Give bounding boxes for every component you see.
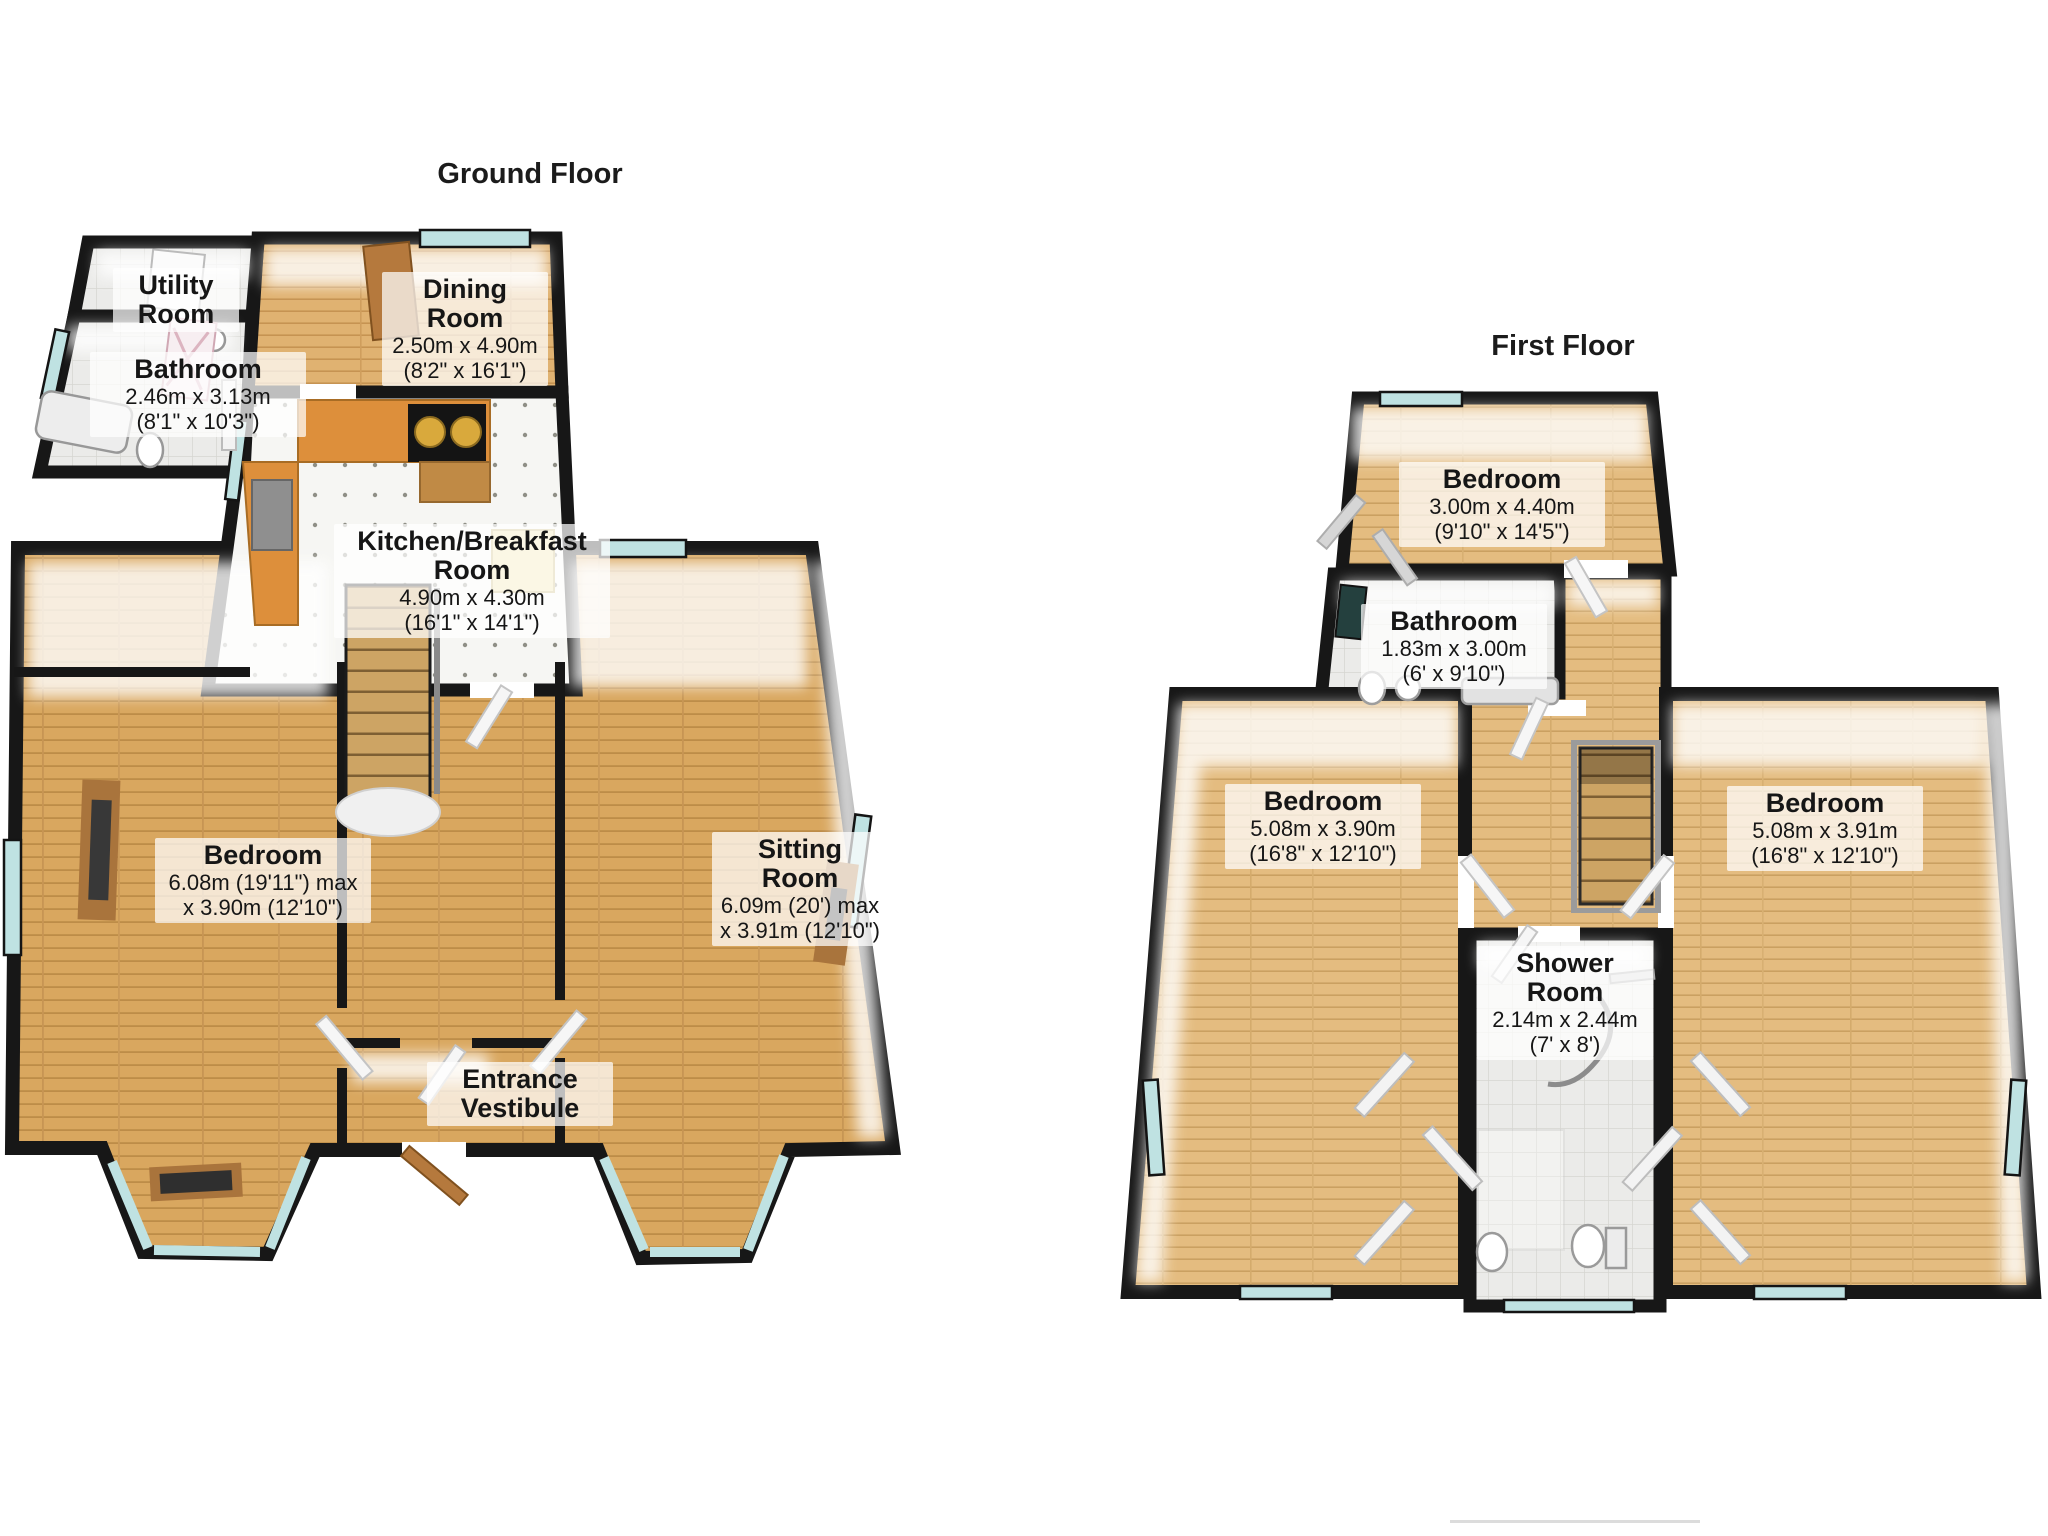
room-dim-metric: 5.08m x 3.91m bbox=[1752, 818, 1898, 843]
room-dim-imperial: (16'8" x 12'10") bbox=[1249, 841, 1397, 866]
room-name: Bedroom bbox=[1766, 789, 1885, 818]
room-dim-metric: 3.00m x 4.40m bbox=[1429, 494, 1575, 519]
room-dim-metric: 6.08m (19'11") max bbox=[169, 870, 358, 895]
room-name: Bathroom bbox=[134, 355, 262, 384]
room-dim-metric: 5.08m x 3.90m bbox=[1250, 816, 1396, 841]
room-label-gf-bathroom: Bathroom 2.46m x 3.13m (8'1" x 10'3") bbox=[90, 352, 306, 437]
room-label-ff-bathroom: Bathroom 1.83m x 3.00m (6' x 9'10") bbox=[1361, 604, 1547, 689]
room-dim-metric: 6.09m (20') max bbox=[721, 893, 879, 918]
room-name: Bedroom bbox=[204, 841, 323, 870]
room-label-ff-bedroom-left: Bedroom 5.08m x 3.90m (16'8" x 12'10") bbox=[1225, 784, 1421, 869]
room-label-vestibule: Entrance Vestibule bbox=[427, 1062, 613, 1126]
room-dim-metric: 1.83m x 3.00m bbox=[1381, 636, 1527, 661]
floorplan-page: Ground Floor First Floor Utility Room Ba… bbox=[0, 0, 2048, 1536]
room-name: Dining Room bbox=[390, 275, 540, 333]
room-dim-imperial: (16'1" x 14'1") bbox=[404, 610, 539, 635]
room-label-sitting: Sitting Room 6.09m (20') max x 3.91m (12… bbox=[712, 832, 888, 946]
room-name: Kitchen/Breakfast Room bbox=[342, 527, 602, 585]
room-dim-imperial: x 3.90m (12'10") bbox=[183, 895, 343, 920]
room-dim-metric: 4.90m x 4.30m bbox=[399, 585, 545, 610]
room-label-gf-bedroom: Bedroom 6.08m (19'11") max x 3.90m (12'1… bbox=[155, 838, 371, 923]
room-name: Sitting Room bbox=[720, 835, 880, 893]
room-label-kitchen: Kitchen/Breakfast Room 4.90m x 4.30m (16… bbox=[334, 524, 610, 638]
room-name: Utility Room bbox=[121, 271, 231, 329]
room-name: Shower Room bbox=[1485, 949, 1645, 1007]
first-floor-title: First Floor bbox=[1491, 330, 1634, 363]
room-dim-imperial: (8'2" x 16'1") bbox=[403, 358, 526, 383]
scale-bar-line bbox=[1450, 1520, 1700, 1523]
room-name: Bedroom bbox=[1443, 465, 1562, 494]
room-dim-imperial: x 3.91m (12'10") bbox=[720, 918, 880, 943]
room-dim-imperial: (9'10" x 14'5") bbox=[1434, 519, 1569, 544]
room-label-ff-bedroom-right: Bedroom 5.08m x 3.91m (16'8" x 12'10") bbox=[1727, 786, 1923, 871]
room-name: Bathroom bbox=[1390, 607, 1518, 636]
ff-bedroom-right-floor bbox=[1666, 694, 2034, 1292]
room-dim-imperial: (6' x 9'10") bbox=[1402, 661, 1505, 686]
room-dim-metric: 2.14m x 2.44m bbox=[1492, 1007, 1638, 1032]
room-label-shower: Shower Room 2.14m x 2.44m (7' x 8') bbox=[1477, 946, 1653, 1060]
room-dim-metric: 2.50m x 4.90m bbox=[392, 333, 538, 358]
room-dim-metric: 2.46m x 3.13m bbox=[125, 384, 271, 409]
room-name: Entrance Vestibule bbox=[435, 1065, 605, 1123]
room-label-ff-bedroom-top: Bedroom 3.00m x 4.40m (9'10" x 14'5") bbox=[1399, 462, 1605, 547]
room-dim-imperial: (7' x 8') bbox=[1530, 1032, 1601, 1057]
room-label-utility: Utility Room bbox=[113, 268, 239, 332]
ground-floor-title: Ground Floor bbox=[437, 158, 622, 191]
room-name: Bedroom bbox=[1264, 787, 1383, 816]
floor-plan-svg bbox=[0, 0, 2048, 1536]
room-dim-imperial: (16'8" x 12'10") bbox=[1751, 843, 1899, 868]
room-label-dining: Dining Room 2.50m x 4.90m (8'2" x 16'1") bbox=[382, 272, 548, 386]
room-dim-imperial: (8'1" x 10'3") bbox=[136, 409, 259, 434]
